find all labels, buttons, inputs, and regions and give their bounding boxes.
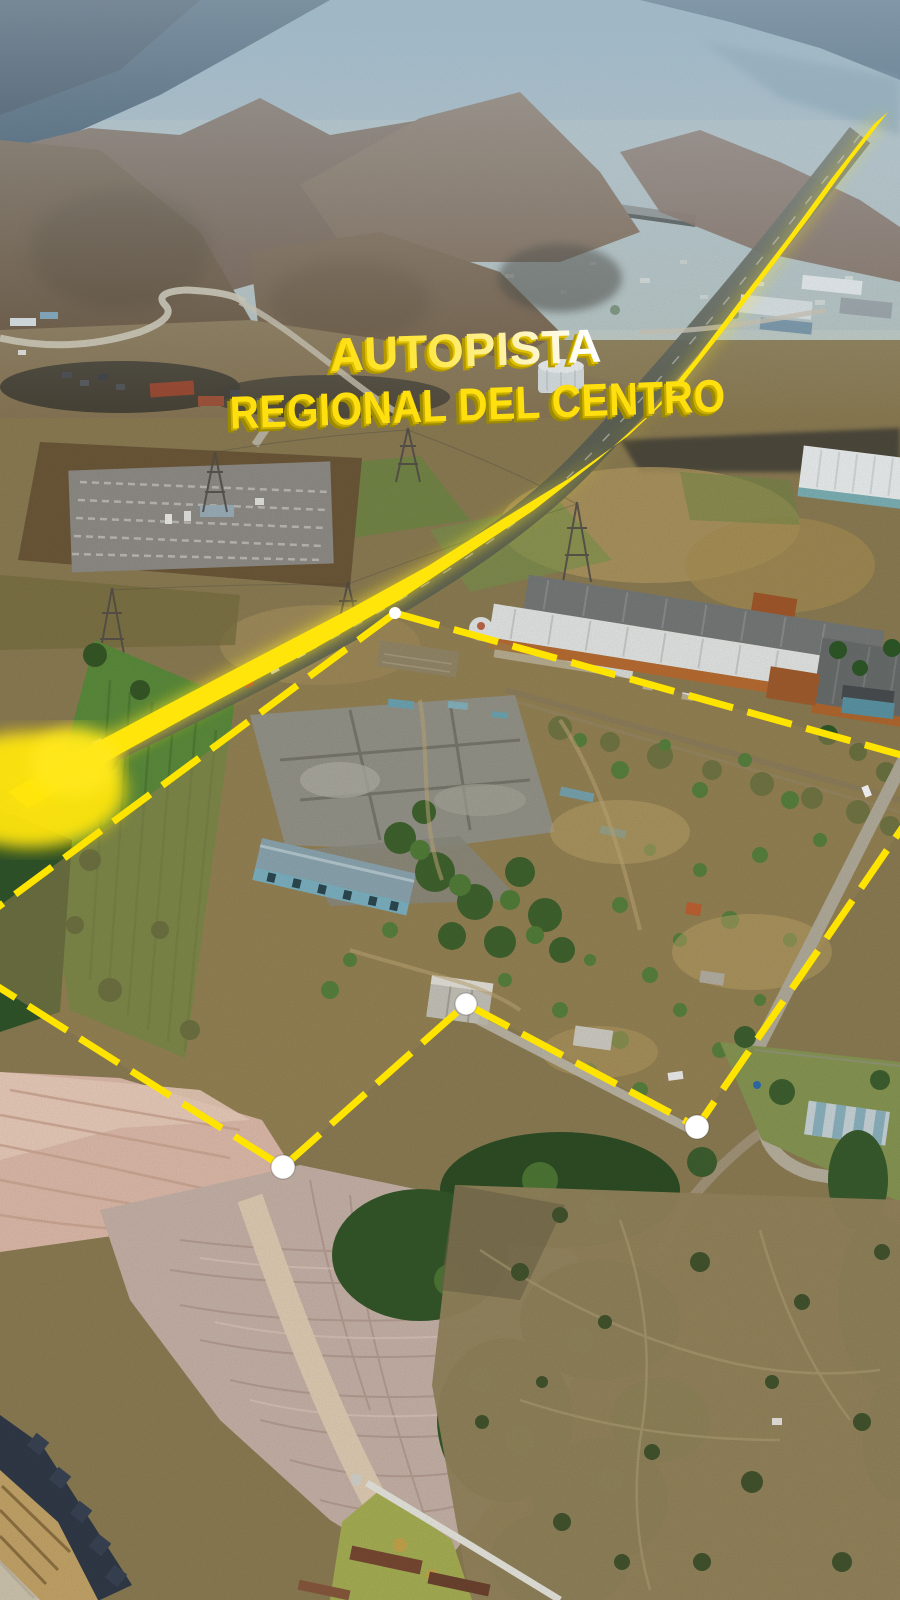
vertex-marker (389, 607, 401, 619)
aerial-photo: AUTOPISTA AUTOPISTA AUTOPISTA REGIONAL D… (0, 0, 900, 1600)
aerial-photo-canvas: AUTOPISTA AUTOPISTA AUTOPISTA REGIONAL D… (0, 0, 900, 1600)
vertex-marker (271, 1155, 295, 1179)
vertex-marker (455, 993, 477, 1015)
title-line1: AUTOPISTA (329, 319, 603, 381)
vertex-marker (685, 1115, 709, 1139)
